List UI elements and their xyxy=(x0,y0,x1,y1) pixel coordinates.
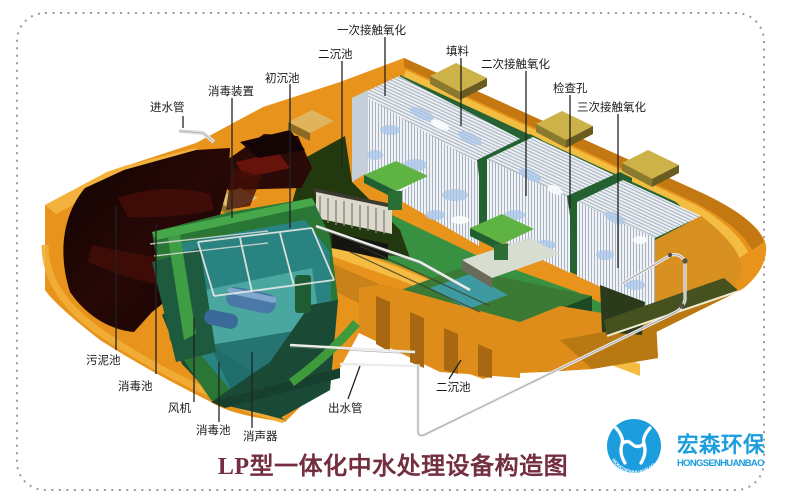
svg-text:二沉池: 二沉池 xyxy=(318,48,353,61)
svg-text:一次接触氧化: 一次接触氧化 xyxy=(337,23,406,37)
svg-text:风机: 风机 xyxy=(168,401,191,415)
svg-text:二次接触氧化: 二次接触氧化 xyxy=(481,57,550,71)
svg-text:初沉池: 初沉池 xyxy=(265,71,300,85)
svg-text:二沉池: 二沉池 xyxy=(436,381,471,394)
svg-text:消毒装置: 消毒装置 xyxy=(208,84,254,98)
svg-text:三次接触氧化: 三次接触氧化 xyxy=(577,100,646,114)
svg-text:宏森环保: 宏森环保 xyxy=(677,432,765,457)
svg-text:污泥池: 污泥池 xyxy=(86,354,121,367)
svg-text:进水管: 进水管 xyxy=(150,100,185,114)
svg-text:消毒池: 消毒池 xyxy=(118,379,153,393)
svg-text:填料: 填料 xyxy=(446,44,469,58)
svg-text:消声器: 消声器 xyxy=(243,429,278,443)
svg-text:LP型一体化中水处理设备构造图: LP型一体化中水处理设备构造图 xyxy=(218,452,568,480)
svg-text:检查孔: 检查孔 xyxy=(553,81,588,95)
svg-text:出水管: 出水管 xyxy=(328,401,363,415)
svg-text:消毒池: 消毒池 xyxy=(196,423,231,437)
svg-text:HONGSENHUANBAO: HONGSENHUANBAO xyxy=(677,458,764,469)
